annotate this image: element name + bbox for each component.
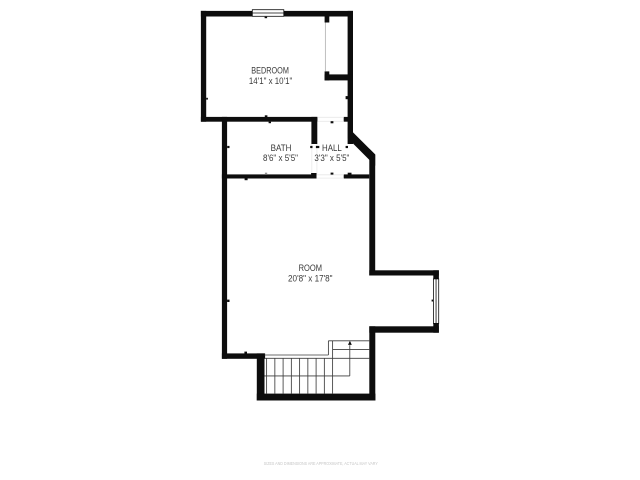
- svg-text:ROOM: ROOM: [299, 263, 322, 273]
- svg-text:BEDROOM: BEDROOM: [251, 66, 289, 76]
- svg-text:BATH: BATH: [271, 143, 292, 153]
- svg-text:3'3" x 5'5": 3'3" x 5'5": [314, 153, 349, 163]
- svg-text:14'1" x 10'1": 14'1" x 10'1": [249, 76, 292, 86]
- svg-text:20'8" x 17'8": 20'8" x 17'8": [288, 274, 333, 284]
- svg-text:8'6" x 5'5": 8'6" x 5'5": [263, 153, 298, 163]
- svg-text:HALL: HALL: [322, 143, 342, 153]
- svg-text:SIZES AND DIMENSIONS ARE APPRO: SIZES AND DIMENSIONS ARE APPROXIMATE, AC…: [264, 461, 378, 466]
